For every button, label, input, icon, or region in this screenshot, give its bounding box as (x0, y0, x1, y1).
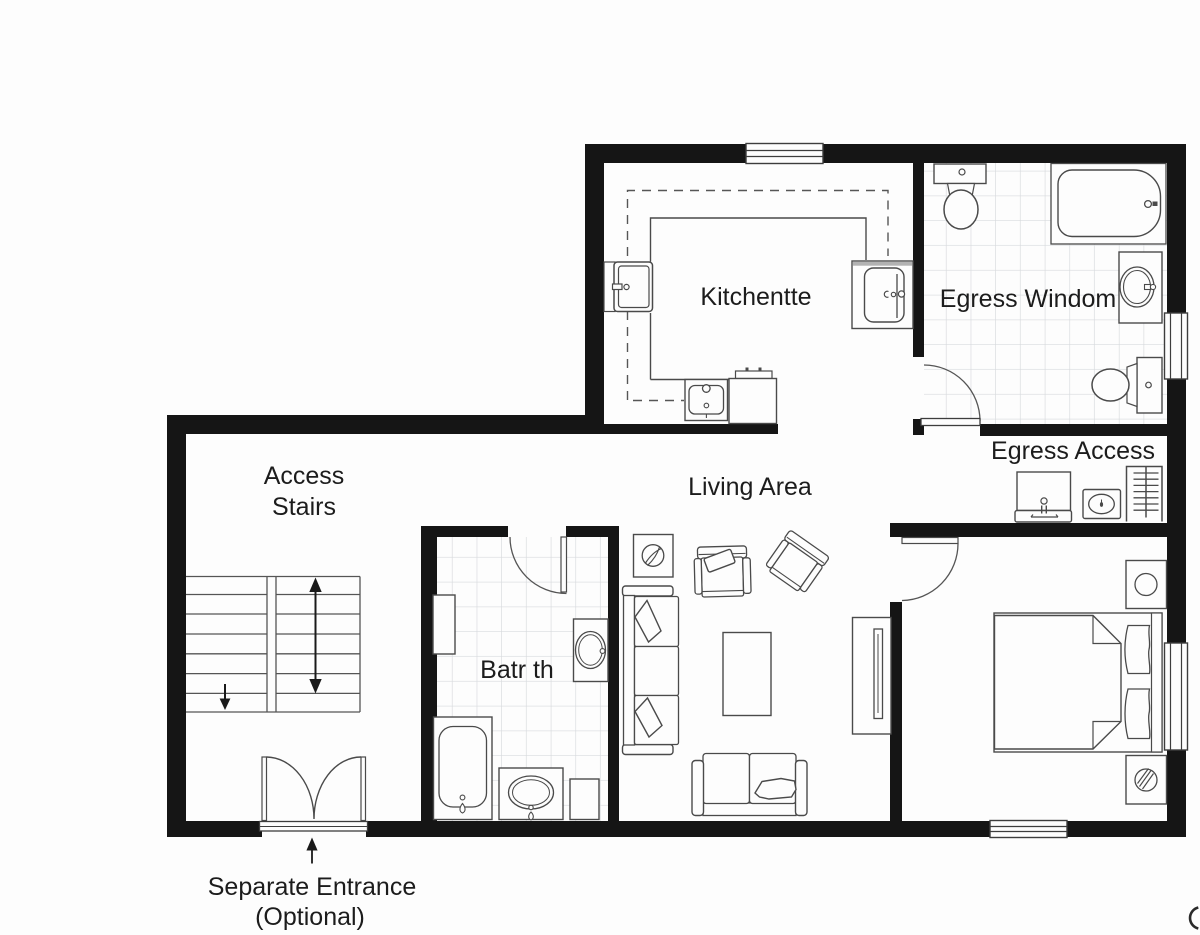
svg-text:Batr th: Batr th (480, 656, 554, 684)
svg-text:Living Area: Living Area (688, 473, 812, 501)
svg-text:Stairs: Stairs (272, 493, 336, 521)
svg-text:Access: Access (264, 462, 345, 490)
svg-text:Egress Windom: Egress Windom (940, 285, 1116, 313)
svg-text:(Optional): (Optional) (255, 903, 365, 931)
svg-text:Egress Access: Egress Access (991, 437, 1155, 465)
svg-text:Kitchentte: Kitchentte (700, 283, 811, 311)
svg-text:Separate Entrance: Separate Entrance (208, 873, 416, 901)
